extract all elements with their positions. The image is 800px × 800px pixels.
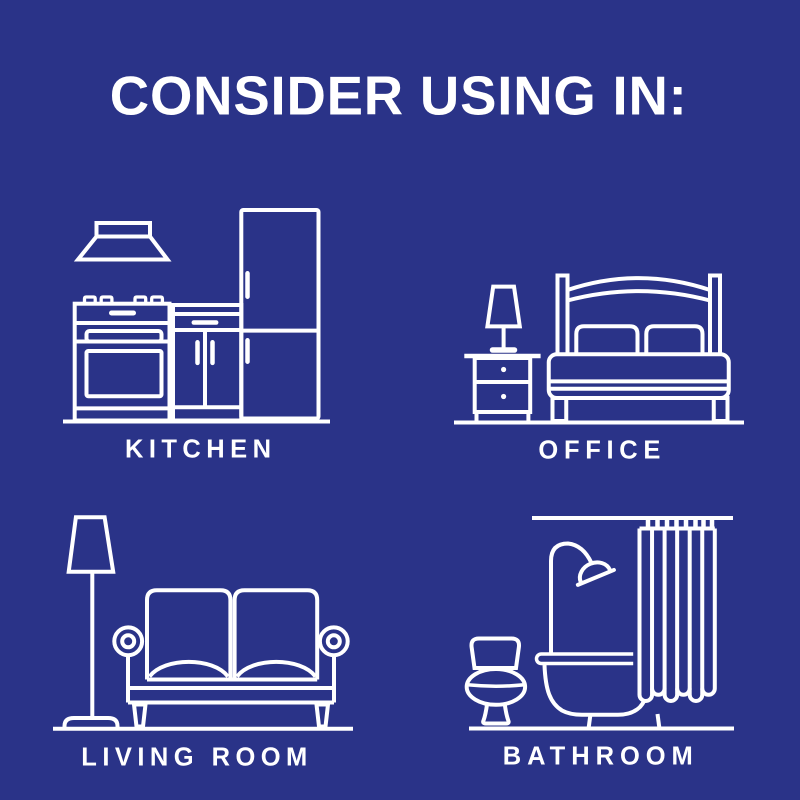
svg-text:BATHROOM: BATHROOM [503,743,693,771]
svg-text:CONSIDER USING IN:: CONSIDER USING IN: [110,66,687,127]
